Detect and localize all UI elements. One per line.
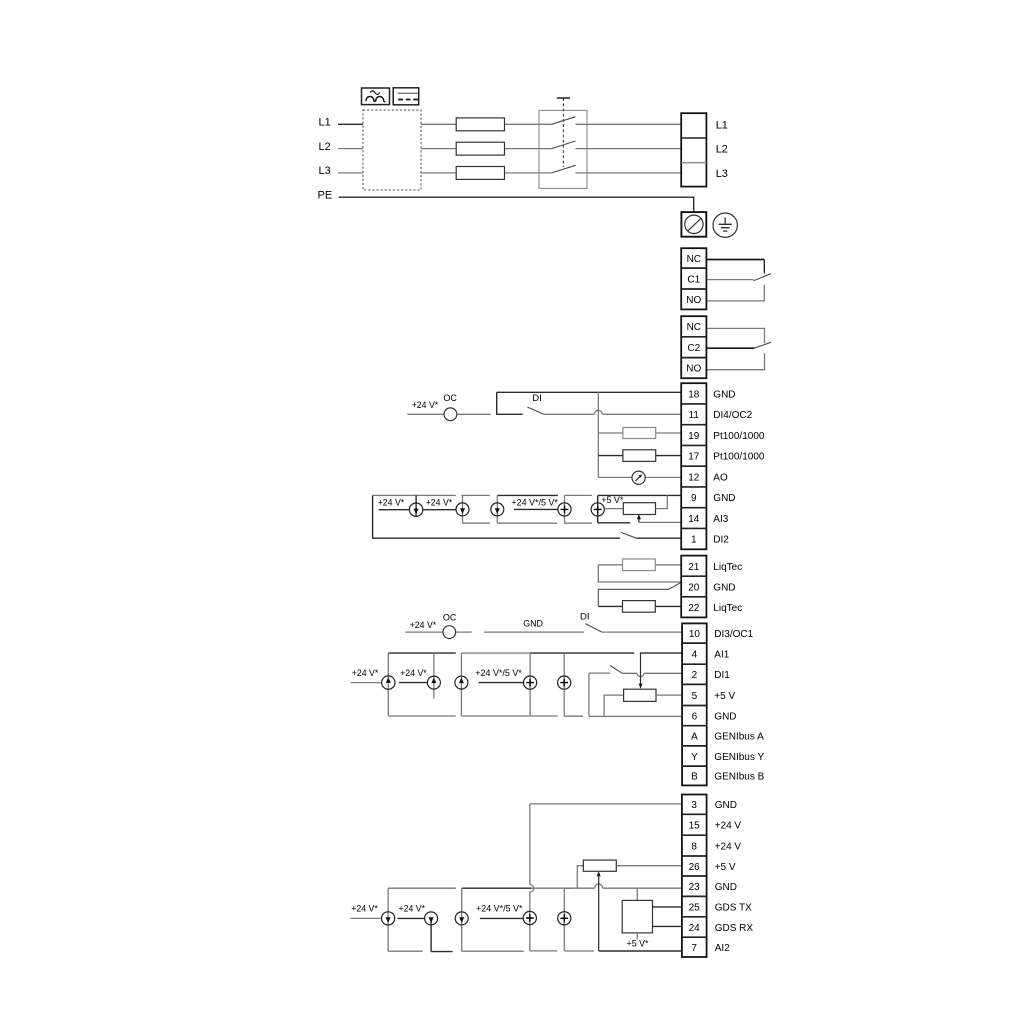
svg-text:+24 V*: +24 V* [412, 400, 439, 411]
svg-text:C2: C2 [687, 343, 700, 354]
svg-text:26: 26 [689, 862, 701, 873]
svg-text:21: 21 [688, 562, 700, 573]
svg-text:B: B [691, 772, 698, 783]
svg-text:11: 11 [689, 410, 700, 421]
svg-text:+5 V*: +5 V* [601, 495, 623, 506]
svg-text:L2: L2 [716, 144, 728, 156]
svg-text:GND: GND [713, 389, 735, 400]
svg-text:9: 9 [691, 493, 697, 504]
svg-text:NO: NO [686, 295, 701, 306]
svg-text:+24 V*: +24 V* [400, 668, 427, 679]
svg-text:DI2: DI2 [713, 535, 729, 546]
svg-text:GND: GND [523, 619, 543, 630]
svg-text:23: 23 [689, 882, 701, 893]
svg-text:GND: GND [713, 493, 735, 504]
svg-text:GDS RX: GDS RX [715, 923, 754, 934]
svg-text:NC: NC [687, 322, 701, 333]
svg-text:OC: OC [443, 393, 457, 404]
svg-text:8: 8 [691, 841, 697, 852]
svg-text:6: 6 [692, 711, 698, 722]
svg-text:L1: L1 [319, 117, 331, 129]
svg-text:PE: PE [318, 189, 333, 201]
svg-text:GENIbus B: GENIbus B [714, 772, 764, 783]
svg-text:GND: GND [713, 582, 735, 593]
svg-text:Pt100/1000: Pt100/1000 [713, 452, 765, 463]
svg-text:+24 V*: +24 V* [378, 497, 405, 508]
svg-text:22: 22 [688, 603, 700, 614]
svg-text:L3: L3 [319, 165, 331, 177]
svg-text:GDS TX: GDS TX [715, 902, 752, 913]
svg-text:+24 V*/5 V*: +24 V*/5 V* [511, 497, 558, 508]
svg-text:3: 3 [691, 800, 697, 811]
svg-text:+24 V*: +24 V* [426, 497, 453, 508]
svg-text:Pt100/1000: Pt100/1000 [713, 431, 765, 442]
svg-text:DI3/OC1: DI3/OC1 [714, 629, 753, 640]
svg-text:7: 7 [691, 943, 697, 954]
svg-text:AI1: AI1 [714, 650, 729, 661]
svg-text:+24 V: +24 V [715, 821, 742, 832]
svg-text:4: 4 [692, 650, 698, 661]
svg-text:+24 V*: +24 V* [351, 903, 378, 914]
svg-text:GND: GND [715, 800, 737, 811]
svg-text:GENIbus A: GENIbus A [714, 732, 764, 743]
svg-text:12: 12 [688, 472, 700, 483]
svg-text:LiqTec: LiqTec [713, 603, 742, 614]
svg-text:DI4/OC2: DI4/OC2 [713, 410, 752, 421]
svg-text:24: 24 [689, 923, 701, 934]
svg-text:25: 25 [689, 902, 701, 913]
svg-text:17: 17 [688, 452, 700, 463]
svg-text:AI2: AI2 [715, 943, 730, 954]
svg-text:2: 2 [692, 670, 698, 681]
svg-text:+5 V: +5 V [714, 691, 735, 702]
svg-text:+24 V*: +24 V* [399, 903, 426, 914]
svg-text:L3: L3 [716, 168, 728, 180]
svg-text:DI1: DI1 [714, 670, 730, 681]
svg-text:DI: DI [532, 393, 542, 404]
svg-text:+5 V: +5 V [715, 862, 736, 873]
svg-text:GENIbus Y: GENIbus Y [714, 752, 764, 763]
svg-text:DI: DI [580, 612, 590, 623]
svg-text:1: 1 [691, 535, 697, 546]
svg-text:L2: L2 [319, 141, 331, 153]
svg-text:+24 V*/5 V*: +24 V*/5 V* [475, 668, 522, 679]
svg-text:Y: Y [691, 752, 698, 763]
svg-text:NC: NC [687, 254, 701, 265]
svg-text:20: 20 [688, 582, 700, 593]
svg-text:GND: GND [714, 711, 736, 722]
svg-text:AO: AO [713, 472, 728, 483]
svg-text:19: 19 [688, 431, 700, 442]
svg-text:NO: NO [686, 364, 701, 375]
svg-text:+24 V*: +24 V* [352, 668, 379, 679]
svg-text:+24 V*/5 V*: +24 V*/5 V* [476, 903, 523, 914]
svg-text:AI3: AI3 [713, 514, 728, 525]
svg-text:+24 V*: +24 V* [410, 620, 437, 631]
svg-text:L1: L1 [716, 119, 728, 131]
svg-text:LiqTec: LiqTec [713, 562, 742, 573]
svg-text:+5 V*: +5 V* [627, 939, 649, 950]
svg-text:+24 V: +24 V [715, 841, 742, 852]
svg-text:15: 15 [689, 821, 701, 832]
svg-text:18: 18 [688, 389, 700, 400]
svg-text:GND: GND [715, 882, 737, 893]
svg-text:OC: OC [443, 613, 457, 624]
svg-text:14: 14 [688, 514, 700, 525]
svg-text:5: 5 [692, 691, 698, 702]
svg-text:A: A [691, 732, 698, 743]
svg-text:C1: C1 [687, 274, 700, 285]
svg-text:10: 10 [689, 629, 701, 640]
